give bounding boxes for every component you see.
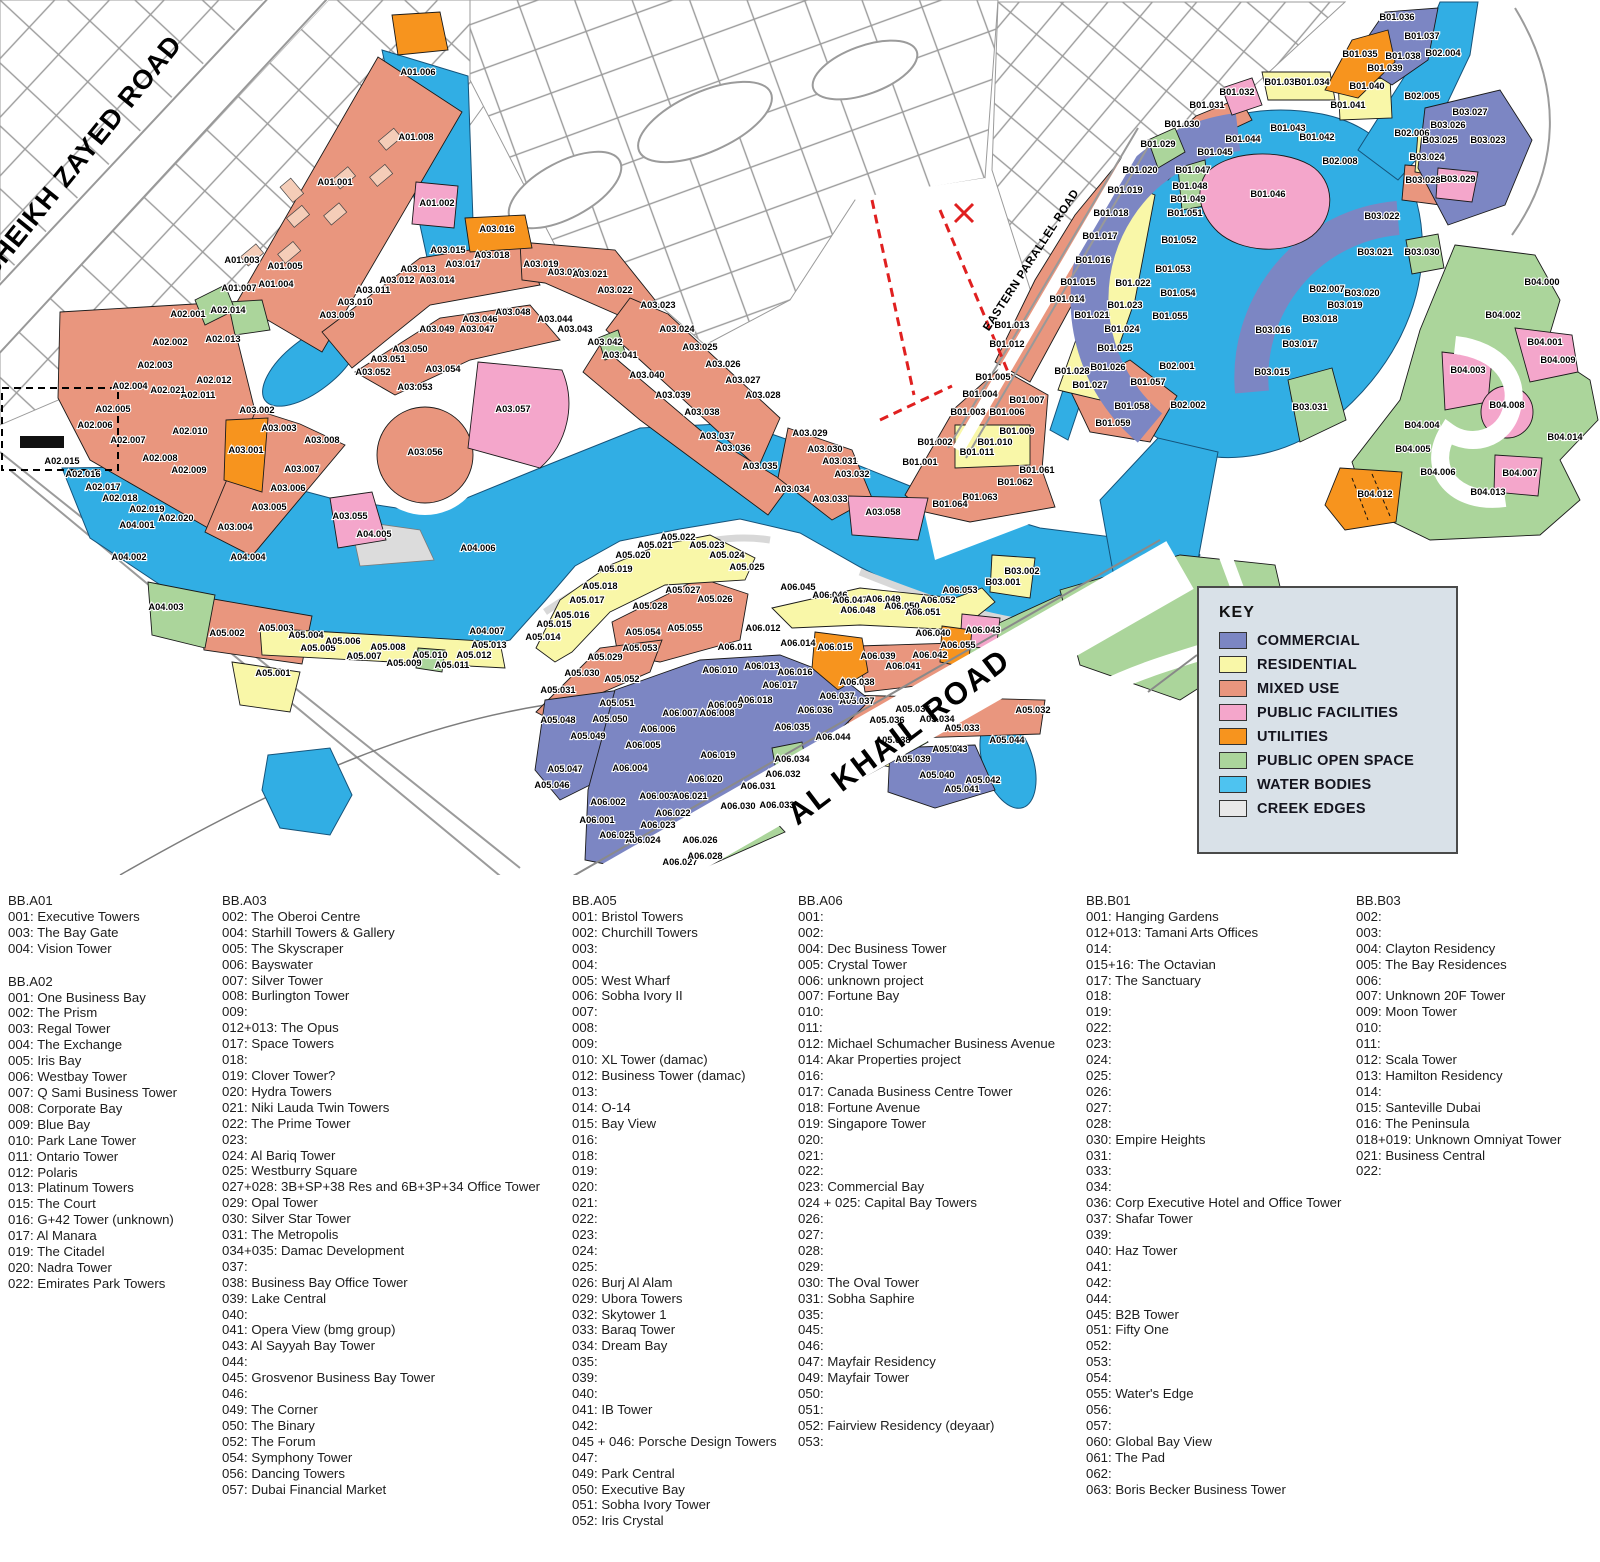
plot-list-item: 005: The Bay Residences <box>1356 957 1561 973</box>
plot-label: B03.018 <box>1302 314 1337 324</box>
business-bay-masterplan: A01.001A01.002A01.003A01.004A01.005A01.0… <box>0 0 1600 1562</box>
plot-label: A01.001 <box>317 177 352 187</box>
plot-list-item: 045: Grosvenor Business Bay Tower <box>222 1370 540 1386</box>
plot-list-item: 007: Q Sami Business Tower <box>8 1085 177 1101</box>
plot-list-item: 002: <box>798 925 1055 941</box>
plot-list-item: 020: Nadra Tower <box>8 1260 177 1276</box>
plot-list-item: 046: <box>798 1338 1055 1354</box>
plot-label: A05.020 <box>615 550 650 560</box>
plot-label: B04.009 <box>1540 355 1575 365</box>
plot-label: B01.024 <box>1104 324 1140 334</box>
plot-label: B01.034 <box>1294 77 1330 87</box>
plot-label: B03.017 <box>1282 339 1317 349</box>
plot-label: B01.062 <box>997 477 1032 487</box>
plot-list-item: 022: <box>1086 1020 1341 1036</box>
plot-label: A06.038 <box>839 677 874 687</box>
plot-group-header: BB.A05 <box>572 893 777 909</box>
plot-label: A06.005 <box>625 740 660 750</box>
plot-label: A06.010 <box>702 665 737 675</box>
plot-label: B04.007 <box>1502 468 1537 478</box>
plot-list-item: 026: Burj Al Alam <box>572 1275 777 1291</box>
plot-list-item: 039: <box>572 1370 777 1386</box>
plot-label: A06.016 <box>777 667 812 677</box>
plot-list-item: 001: Hanging Gardens <box>1086 909 1341 925</box>
legend-swatch <box>1219 704 1247 721</box>
plot-list-item: 025: <box>572 1259 777 1275</box>
plot-list-item: 054: <box>1086 1370 1341 1386</box>
legend-swatch <box>1219 632 1247 649</box>
plot-label: B04.008 <box>1489 400 1524 410</box>
plot-label: A03.002 <box>239 405 274 415</box>
plot-label: B01.051 <box>1167 208 1202 218</box>
plot-label: A03.005 <box>251 502 286 512</box>
plot-list-item: 016: <box>572 1132 777 1148</box>
plot-list-item: 022: <box>572 1211 777 1227</box>
plot-list-item: 008: <box>572 1020 777 1036</box>
plot-list-item: 042: <box>1086 1275 1341 1291</box>
plot-label: A03.036 <box>715 443 750 453</box>
plot-label: B01.063 <box>962 492 997 502</box>
plot-list-item: 034: Dream Bay <box>572 1338 777 1354</box>
plot-list-item: 011: Ontario Tower <box>8 1149 177 1165</box>
plot-label: A03.022 <box>597 285 632 295</box>
plot-label: A03.025 <box>682 342 717 352</box>
plot-label: A03.013 <box>400 264 435 274</box>
plot-label: A03.001 <box>228 445 263 455</box>
plot-list-item: 041: IB Tower <box>572 1402 777 1418</box>
plot-label: B01.049 <box>1170 194 1205 204</box>
plot-label: B04.002 <box>1485 310 1520 320</box>
plot-label: A06.045 <box>780 582 815 592</box>
plot-label: B01.017 <box>1082 231 1117 241</box>
plot-label: B04.014 <box>1547 432 1583 442</box>
plot-label: A06.006 <box>640 724 675 734</box>
legend-swatch <box>1219 680 1247 697</box>
plot-list-item: 039: <box>1086 1227 1341 1243</box>
plot-label: B01.023 <box>1107 300 1142 310</box>
plot-label: A03.047 <box>459 324 494 334</box>
plot-list-item: 006: unknown project <box>798 973 1055 989</box>
plot-label: A06.051 <box>905 607 940 617</box>
plot-list-item: 057: <box>1086 1418 1341 1434</box>
plot-list-item: 010: <box>1356 1020 1561 1036</box>
plot-label: A05.055 <box>667 623 702 633</box>
plot-list-item: 005: West Wharf <box>572 973 777 989</box>
plot-list-item: 050: The Binary <box>222 1418 540 1434</box>
plot-label: A05.044 <box>989 735 1025 745</box>
plot-label: A06.021 <box>672 791 707 801</box>
plot-list-item: 009: Blue Bay <box>8 1117 177 1133</box>
plot-label: A05.010 <box>412 650 447 660</box>
plot-label: B01.052 <box>1161 235 1196 245</box>
plot-label: A02.001 <box>170 309 205 319</box>
legend-item: COMMERCIAL <box>1219 632 1456 649</box>
plot-label: A06.034 <box>774 754 810 764</box>
plot-label: A03.044 <box>537 314 573 324</box>
plot-list-item: 041: <box>1086 1259 1341 1275</box>
plot-list-item: 035: <box>798 1307 1055 1323</box>
plot-list-item: 022: The Prime Tower <box>222 1116 540 1132</box>
plot-label: A03.010 <box>337 297 372 307</box>
plot-list-item: 017: Al Manara <box>8 1228 177 1244</box>
plot-list-item: 014: O-14 <box>572 1100 777 1116</box>
plot-list-item: 003: <box>1356 925 1561 941</box>
plot-label: A02.002 <box>152 337 187 347</box>
plot-label: B01.012 <box>989 339 1024 349</box>
plot-label: B04.012 <box>1357 489 1392 499</box>
legend-item: PUBLIC FACILITIES <box>1219 704 1456 721</box>
plot-list-item: 063: Boris Becker Business Tower <box>1086 1482 1341 1498</box>
plot-list-item: 003: <box>572 941 777 957</box>
plot-label: A02.013 <box>205 334 240 344</box>
plot-list-item: 061: The Pad <box>1086 1450 1341 1466</box>
legend-swatch <box>1219 776 1247 793</box>
legend-label: COMMERCIAL <box>1257 633 1360 649</box>
plot-list-item: 021: Niki Lauda Twin Towers <box>222 1100 540 1116</box>
plot-list-item: 007: Silver Tower <box>222 973 540 989</box>
plot-label: A06.023 <box>640 820 675 830</box>
plot-label: A03.048 <box>495 307 530 317</box>
plot-label: A06.019 <box>700 750 735 760</box>
plot-label: A06.018 <box>737 695 772 705</box>
plot-label: A01.002 <box>419 198 454 208</box>
plot-label: B01.045 <box>1197 147 1232 157</box>
plot-list-item: 052: Iris Crystal <box>572 1513 777 1529</box>
plot-label: A05.012 <box>456 650 491 660</box>
plot-group: BB.A02001: One Business Bay002: The Pris… <box>8 974 177 1292</box>
plot-list-item: 014: Akar Properties project <box>798 1052 1055 1068</box>
plot-label: A05.026 <box>697 594 732 604</box>
plot-list-item: 008: Corporate Bay <box>8 1101 177 1117</box>
plot-group-header: BB.B03 <box>1356 893 1561 909</box>
plot-label: B01.005 <box>975 372 1010 382</box>
plot-label: A06.043 <box>965 625 1000 635</box>
plot-label: A06.041 <box>885 661 920 671</box>
plot-list-item: 019: <box>572 1163 777 1179</box>
plot-label: B01.001 <box>902 457 937 467</box>
plot-list-item: 042: <box>572 1418 777 1434</box>
plot-list-item: 007: Unknown 20F Tower <box>1356 988 1561 1004</box>
plot-label: A06.052 <box>920 595 955 605</box>
plot-label: A03.058 <box>865 507 900 517</box>
plot-label: A02.018 <box>102 493 137 503</box>
plot-label: A05.033 <box>944 723 979 733</box>
plot-label: A06.032 <box>765 769 800 779</box>
plot-label: A03.041 <box>602 350 637 360</box>
legend-item: RESIDENTIAL <box>1219 656 1456 673</box>
legend-swatch <box>1219 656 1247 673</box>
plot-list-item: 054: Symphony Tower <box>222 1450 540 1466</box>
plot-label: A05.032 <box>1015 705 1050 715</box>
plot-list-item: 039: Lake Central <box>222 1291 540 1307</box>
plot-label: A05.054 <box>625 627 661 637</box>
plot-list-item: 032: Skytower 1 <box>572 1307 777 1323</box>
plot-list-item: 010: Park Lane Tower <box>8 1133 177 1149</box>
plot-label: A03.042 <box>587 337 622 347</box>
plot-label: B01.011 <box>960 447 995 457</box>
plot-label: A05.031 <box>540 685 575 695</box>
plot-list-item: 052: Fairview Residency (deyaar) <box>798 1418 1055 1434</box>
plot-list-item: 020: <box>572 1179 777 1195</box>
plot-label: B01.029 <box>1140 139 1175 149</box>
plot-label: A06.036 <box>797 705 832 715</box>
plot-list-item: 018+019: Unknown Omniyat Tower <box>1356 1132 1561 1148</box>
plot-label: B01.061 <box>1019 465 1054 475</box>
legend-label: PUBLIC FACILITIES <box>1257 705 1398 721</box>
plot-list-item: 023: Commercial Bay <box>798 1179 1055 1195</box>
plot-list-item: 022: <box>1356 1163 1561 1179</box>
plot-list-item: 024: <box>572 1243 777 1259</box>
plot-list-item: 006: <box>1356 973 1561 989</box>
plot-list-item: 005: Iris Bay <box>8 1053 177 1069</box>
plot-label: B03.024 <box>1409 152 1445 162</box>
plot-label: A05.016 <box>554 610 589 620</box>
plot-list-item: 004: Clayton Residency <box>1356 941 1561 957</box>
legend-item: UTILITIES <box>1219 728 1456 745</box>
plot-group: BB.A05001: Bristol Towers002: Churchill … <box>572 893 777 1529</box>
plot-list-item: 011: <box>798 1020 1055 1036</box>
plot-list-item: 029: <box>798 1259 1055 1275</box>
plot-list-item: 004: The Exchange <box>8 1037 177 1053</box>
plot-label: B01.014 <box>1049 294 1085 304</box>
plot-label: A03.046 <box>462 314 497 324</box>
plot-label: A03.023 <box>640 300 675 310</box>
plot-label: A03.053 <box>397 382 432 392</box>
plot-list-item: 025: <box>1086 1068 1341 1084</box>
plot-label: A02.016 <box>65 469 100 479</box>
plot-label: A03.052 <box>355 367 390 377</box>
plot-label: B01.027 <box>1072 380 1107 390</box>
plot-list-item: 012: Scala Tower <box>1356 1052 1561 1068</box>
plot-label: A06.040 <box>915 628 950 638</box>
plot-list-item: 004: <box>572 957 777 973</box>
plot-label: B01.003 <box>950 407 985 417</box>
plot-list-item: 027: <box>798 1227 1055 1243</box>
plot-list-item: 016: G+42 Tower (unknown) <box>8 1212 177 1228</box>
plot-label: B02.005 <box>1404 91 1439 101</box>
list-column: BB.A01001: Executive Towers003: The Bay … <box>8 893 177 1292</box>
plot-group: BB.A03002: The Oberoi Centre004: Starhil… <box>222 893 540 1497</box>
plot-list-item: 055: Water's Edge <box>1086 1386 1341 1402</box>
plot-label: A05.011 <box>435 660 470 670</box>
plot-list-item: 036: Corp Executive Hotel and Office Tow… <box>1086 1195 1341 1211</box>
plot-label: A03.029 <box>792 428 827 438</box>
plot-list-item: 016: The Peninsula <box>1356 1116 1561 1132</box>
plot-label: A02.010 <box>172 426 207 436</box>
legend-swatch <box>1219 752 1247 769</box>
plot-list-item: 030: Empire Heights <box>1086 1132 1341 1148</box>
list-column: BB.A03002: The Oberoi Centre004: Starhil… <box>222 893 540 1497</box>
plot-label: A05.006 <box>325 636 360 646</box>
plot-list-item: 002: <box>1356 909 1561 925</box>
plot-list-item: 051: Sobha Ivory Tower <box>572 1497 777 1513</box>
plot-label: B03.027 <box>1452 107 1487 117</box>
plot-label: A06.031 <box>740 781 775 791</box>
key-title: KEY <box>1219 604 1456 622</box>
plot-label: A02.017 <box>85 482 120 492</box>
plot-label: A02.009 <box>171 465 206 475</box>
plot-label: A03.014 <box>419 275 455 285</box>
plot-list-item: 034: <box>1086 1179 1341 1195</box>
plot-list-item: 003: Regal Tower <box>8 1021 177 1037</box>
plot-list-item: 050: Executive Bay <box>572 1482 777 1498</box>
plot-list-item: 017: Space Towers <box>222 1036 540 1052</box>
plot-group: BB.A01001: Executive Towers003: The Bay … <box>8 893 177 957</box>
plot-label: B01.055 <box>1152 311 1187 321</box>
plot-list-item: 049: Park Central <box>572 1466 777 1482</box>
plot-label: B04.003 <box>1450 365 1485 375</box>
plot-label: A03.015 <box>430 245 465 255</box>
plot-label: A03.006 <box>270 483 305 493</box>
plot-list-item: 023: <box>1086 1036 1341 1052</box>
list-column: BB.A06001:002:004: Dec Business Tower005… <box>798 893 1055 1450</box>
plot-list-item: 020: Hydra Towers <box>222 1084 540 1100</box>
plot-label: A05.043 <box>932 744 967 754</box>
plot-label: A02.011 <box>181 390 216 400</box>
plot-group: BB.B01001: Hanging Gardens012+013: Taman… <box>1086 893 1341 1497</box>
plot-label: B03.019 <box>1327 300 1362 310</box>
plot-list-item: 017: The Sanctuary <box>1086 973 1341 989</box>
plot-label: B03.028 <box>1405 175 1440 185</box>
plot-list-item: 013: Hamilton Residency <box>1356 1068 1561 1084</box>
plot-label: A03.003 <box>261 423 296 433</box>
plot-list-item: 012: Michael Schumacher Business Avenue <box>798 1036 1055 1052</box>
plot-list-item: 015: Bay View <box>572 1116 777 1132</box>
plot-label: B01.054 <box>1160 288 1196 298</box>
plot-list-item: 029: Ubora Towers <box>572 1291 777 1307</box>
plot-label: A03.037 <box>699 431 734 441</box>
plot-label: B01.038 <box>1385 51 1420 61</box>
plot-list-item: 020: <box>798 1132 1055 1148</box>
plot-label: A06.053 <box>942 585 977 595</box>
legend-item: MIXED USE <box>1219 680 1456 697</box>
plot-list-item: 019: <box>1086 1004 1341 1020</box>
plot-label: A03.051 <box>370 354 405 364</box>
plot-list-item: 016: <box>798 1068 1055 1084</box>
plot-label: A03.008 <box>304 435 339 445</box>
plot-label: A04.004 <box>230 552 266 562</box>
plot-label: B01.026 <box>1090 362 1125 372</box>
plot-list-item: 057: Dubai Financial Market <box>222 1482 540 1498</box>
plot-list-item: 041: Opera View (bmg group) <box>222 1322 540 1338</box>
plot-label: A06.055 <box>940 640 975 650</box>
plot-label: A03.012 <box>379 275 414 285</box>
plot-list-item: 021: <box>798 1148 1055 1164</box>
plot-label: B01.040 <box>1349 81 1384 91</box>
plot-list-item: 056: Dancing Towers <box>222 1466 540 1482</box>
plot-list-item: 046: <box>222 1386 540 1402</box>
plot-label: A06.025 <box>599 830 634 840</box>
plot-label: A06.035 <box>774 722 809 732</box>
plot-label: A06.030 <box>720 801 755 811</box>
plot-list-item: 006: Bayswater <box>222 957 540 973</box>
plot-label: B02.004 <box>1425 48 1461 58</box>
plot-label: B01.007 <box>1009 395 1044 405</box>
plot-label: A06.042 <box>912 650 947 660</box>
plot-list-item: 053: <box>1086 1354 1341 1370</box>
legend-label: UTILITIES <box>1257 729 1328 745</box>
plot-label: B02.008 <box>1322 156 1357 166</box>
plot-label: B01.021 <box>1074 310 1109 320</box>
plot-label: A02.020 <box>158 513 193 523</box>
plot-label: B02.007 <box>1309 284 1344 294</box>
plot-list-item: 037: <box>222 1259 540 1275</box>
plot-list-item: 050: <box>798 1386 1055 1402</box>
plot-label: A01.006 <box>400 67 435 77</box>
plot-label: A03.038 <box>684 407 719 417</box>
plot-label: A03.054 <box>425 364 461 374</box>
plot-label: A05.051 <box>599 698 634 708</box>
plot-label: A06.015 <box>817 642 852 652</box>
plot-label: A05.041 <box>944 784 979 794</box>
plot-label: A03.050 <box>392 344 427 354</box>
plot-label: B01.064 <box>932 499 968 509</box>
plot-list-item: 010: <box>798 1004 1055 1020</box>
plot-label: A03.028 <box>745 390 780 400</box>
plot-label: B03.022 <box>1364 211 1399 221</box>
plot-label: B03.002 <box>1004 566 1039 576</box>
legend-swatch <box>1219 728 1247 745</box>
plot-label: A05.047 <box>547 764 582 774</box>
plot-label: A05.002 <box>209 628 244 638</box>
plot-label: A06.001 <box>579 815 614 825</box>
plot-label: B01.058 <box>1114 401 1149 411</box>
plot-label: B01.037 <box>1404 31 1439 41</box>
plot-list-item: 011: <box>1356 1036 1561 1052</box>
plot-label: A03.011 <box>356 285 391 295</box>
plot-list-item: 006: Westbay Tower <box>8 1069 177 1085</box>
plot-list-item: 018: Fortune Avenue <box>798 1100 1055 1116</box>
plot-list-item: 053: <box>798 1434 1055 1450</box>
plot-label: B03.031 <box>1292 402 1327 412</box>
plot-group-header: BB.A03 <box>222 893 540 909</box>
plot-list-item: 010: XL Tower (damac) <box>572 1052 777 1068</box>
plot-label: A06.020 <box>687 774 722 784</box>
plot-label: A05.040 <box>919 770 954 780</box>
plot-list-item: 040: Haz Tower <box>1086 1243 1341 1259</box>
plot-label: A03.026 <box>705 359 740 369</box>
plot-label: B04.013 <box>1470 487 1505 497</box>
plot-list-item: 047: Mayfair Residency <box>798 1354 1055 1370</box>
plot-list-item: 017: Canada Business Centre Tower <box>798 1084 1055 1100</box>
plot-list-item: 021: <box>572 1195 777 1211</box>
plot-label: A02.004 <box>112 381 148 391</box>
plot-label: B01.010 <box>977 437 1012 447</box>
plot-list-item: 007: Fortune Bay <box>798 988 1055 1004</box>
plot-list-item: 006: Sobha Ivory II <box>572 988 777 1004</box>
plot-list-item: 014: <box>1356 1084 1561 1100</box>
plot-list-item: 001: One Business Bay <box>8 990 177 1006</box>
plot-list-item: 037: Shafar Tower <box>1086 1211 1341 1227</box>
plot-list-item: 002: The Oberoi Centre <box>222 909 540 925</box>
plot-label: A05.001 <box>255 668 290 678</box>
plot-list-item: 012+013: The Opus <box>222 1020 540 1036</box>
plot-group: BB.B03002:003:004: Clayton Residency005:… <box>1356 893 1561 1179</box>
plot-list-item: 014: <box>1086 941 1341 957</box>
plot-list-item: 002: The Prism <box>8 1005 177 1021</box>
plot-list-item: 004: Vision Tower <box>8 941 177 957</box>
plot-list-item: 013: <box>572 1084 777 1100</box>
plot-list-item: 001: <box>798 909 1055 925</box>
plot-label: A03.055 <box>332 511 367 521</box>
plot-label: A03.018 <box>474 250 509 260</box>
plot-list-item: 026: <box>798 1211 1055 1227</box>
plot-group: BB.A06001:002:004: Dec Business Tower005… <box>798 893 1055 1450</box>
plot-list-item: 052: <box>1086 1338 1341 1354</box>
plot-label: A03.035 <box>742 461 777 471</box>
plot-label: B01.047 <box>1175 165 1210 175</box>
plot-label: A01.005 <box>267 261 302 271</box>
